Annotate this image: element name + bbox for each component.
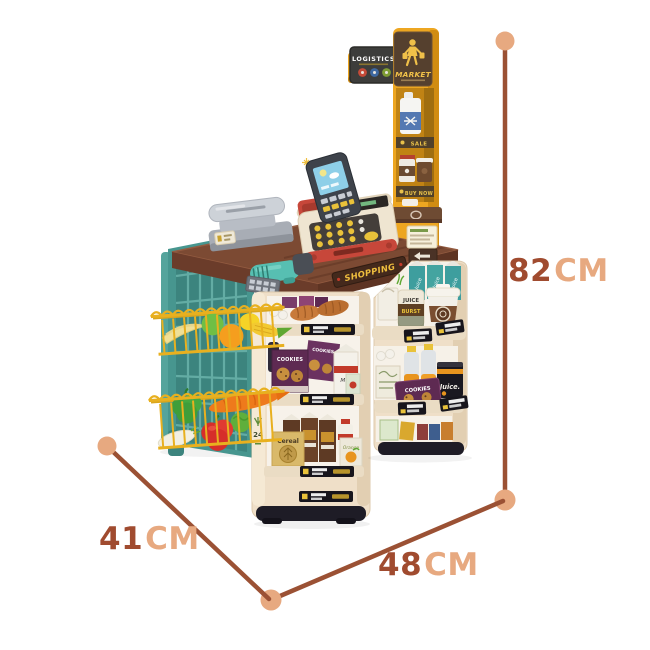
price-tag	[398, 402, 426, 416]
dimension-depth-line	[98, 437, 270, 600]
depth-unit: CM	[145, 521, 200, 557]
depth-value: 41	[99, 521, 143, 557]
height-dimension-label: 82CM	[508, 256, 609, 287]
pole-collar	[390, 207, 442, 223]
sale-label: SALE	[411, 142, 428, 148]
price-tag	[301, 324, 355, 335]
pole-shelf: SALE BUY NOW	[396, 88, 434, 206]
unit-base	[378, 442, 464, 455]
cookies-label: COOKIES	[277, 357, 304, 363]
buy-now-label: BUY NOW	[405, 191, 434, 197]
depth-dimension-label: 41CM	[99, 524, 200, 555]
logistics-sign: LOGISTICS	[350, 47, 397, 83]
height-value: 82	[508, 253, 552, 289]
juice-box-small	[346, 374, 360, 394]
dimension-dot	[98, 437, 117, 456]
market-sign: MARKET	[394, 32, 432, 86]
logistics-label: LOGISTICS	[352, 55, 395, 63]
market-label: MARKET	[395, 70, 432, 79]
cream-jar	[399, 155, 415, 182]
orange-juice-box: Orange	[340, 438, 362, 466]
price-tag	[299, 491, 353, 502]
height-unit: CM	[554, 253, 609, 289]
coffee-jar	[416, 158, 433, 182]
width-value: 48	[378, 547, 422, 583]
sale-band: SALE	[396, 137, 434, 148]
detergent-bottle	[400, 92, 421, 134]
playset-illustration: LOGISTICS MARKET	[0, 0, 650, 650]
cash-register	[295, 151, 400, 265]
cookies-box-front: COOKIES	[272, 350, 308, 392]
buy-now-band: BUY NOW	[396, 186, 434, 197]
price-tag	[404, 328, 433, 342]
width-unit: CM	[424, 547, 479, 583]
cereal-box: Cereal	[272, 432, 304, 466]
product-dimension-image: LOGISTICS MARKET	[0, 0, 650, 650]
price-tag	[300, 394, 354, 405]
width-dimension-label: 48CM	[378, 550, 479, 581]
juice-burst-can: JUICE BURST	[398, 290, 424, 326]
shelf-unit-right: Juice Juice Juice JUICE BURST	[368, 259, 472, 463]
juice-burst-label: BURST	[402, 309, 421, 315]
juice-can-label: Juice.	[438, 383, 460, 391]
counter-side-card	[407, 226, 437, 263]
dimension-dot	[496, 32, 515, 51]
juice-black-can: Juice.	[437, 362, 463, 398]
juice-burst-label: JUICE	[402, 298, 419, 304]
price-tag	[300, 466, 354, 477]
cereal-shelf: Cereal Orange	[267, 406, 362, 466]
